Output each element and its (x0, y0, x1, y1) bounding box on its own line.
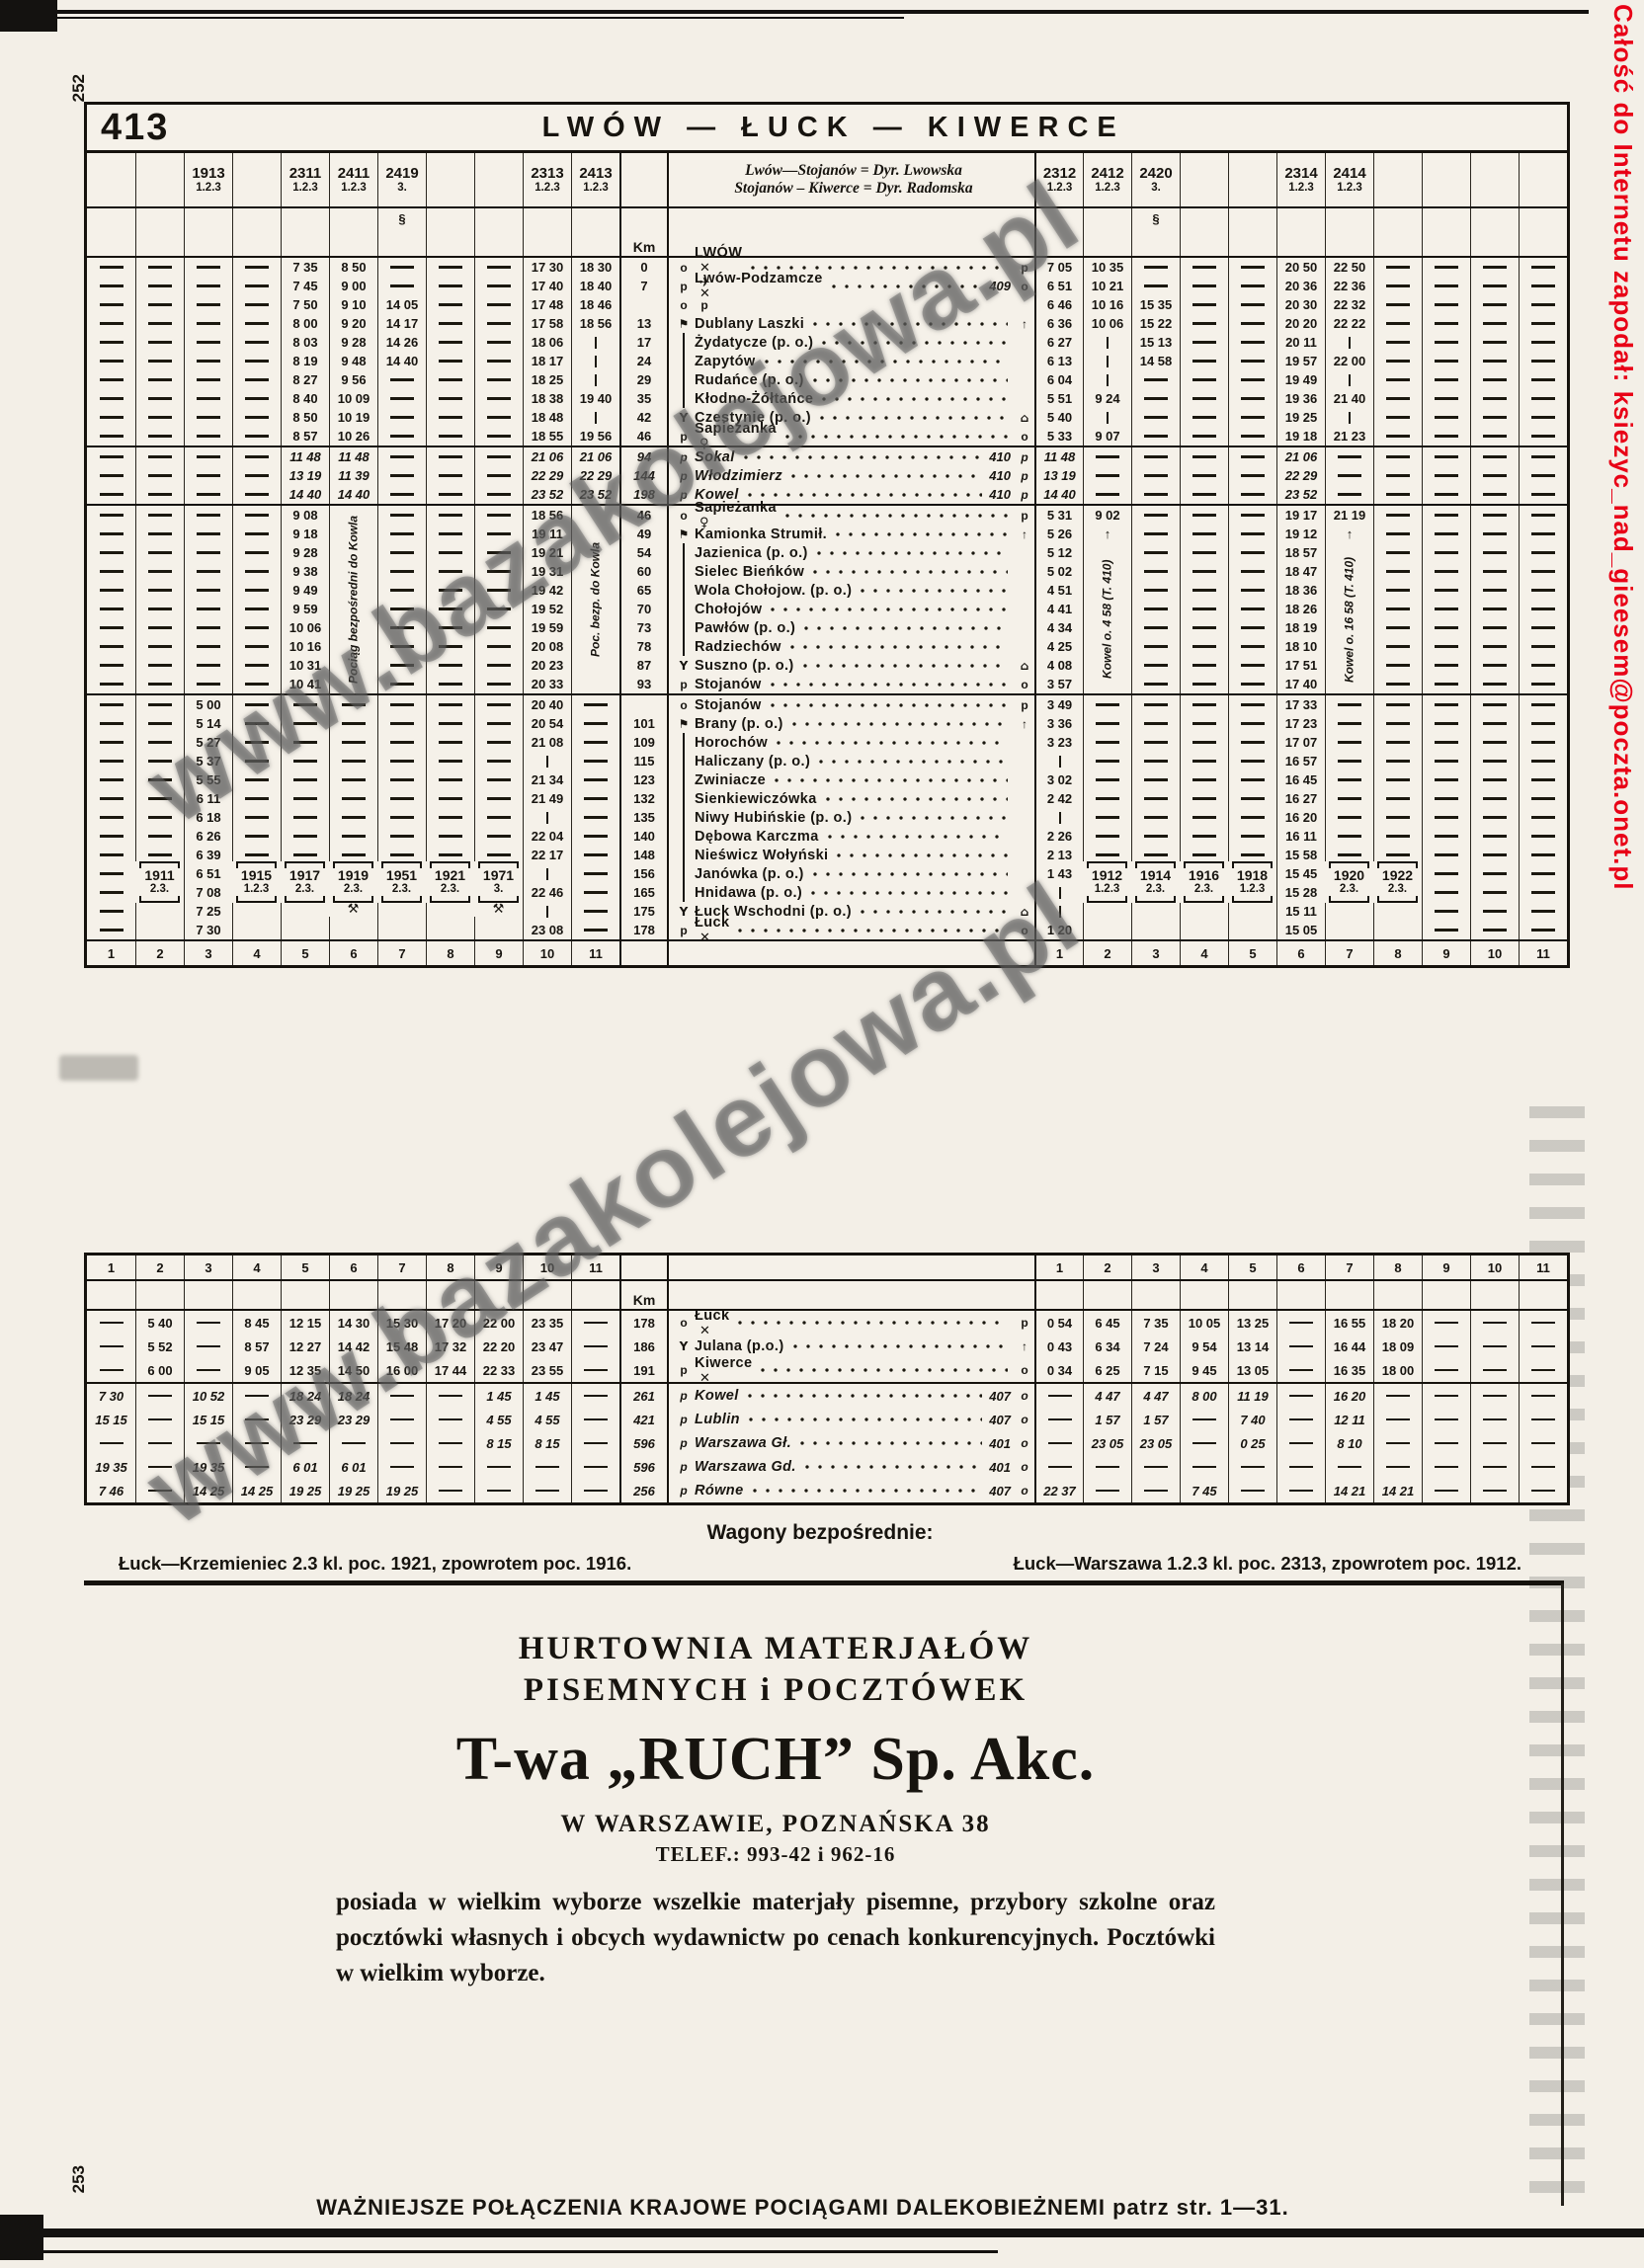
station-prefix: p (673, 1358, 695, 1382)
time-cell (232, 1281, 281, 1309)
through-coach-left: Łuck—Krzemieniec 2.3 kl. poc. 1921, zpow… (119, 1553, 631, 1575)
time-cell (1422, 637, 1470, 656)
dash-mark (1531, 1395, 1555, 1398)
km-cell: 109 (619, 733, 667, 752)
time-cell: 20 50 (1276, 258, 1325, 277)
dash-mark (1531, 514, 1555, 517)
station-prefix: o (673, 1311, 695, 1335)
dash-mark (1483, 816, 1507, 819)
dash-mark (1241, 778, 1265, 781)
dash-mark (1241, 514, 1265, 517)
dash-mark (245, 703, 269, 706)
continuation-mark (1059, 887, 1061, 899)
time-cell: 23 05 (1131, 1431, 1180, 1455)
time-cell: 8 00 (281, 314, 329, 333)
dash-mark (245, 741, 269, 744)
dash-mark (293, 760, 317, 763)
time-cell: 6 04 (1034, 370, 1083, 389)
dotted-leader (811, 568, 1008, 576)
dash-mark (245, 853, 269, 856)
time-cell (135, 408, 184, 427)
dash-mark (1531, 1490, 1555, 1493)
time-cell (1373, 1431, 1422, 1455)
dash-mark (1192, 722, 1216, 725)
time-cell: 19 42 (523, 581, 571, 600)
dash-mark (584, 778, 608, 781)
time-cell (1519, 808, 1567, 827)
time-cell: 19 40 (571, 389, 619, 408)
time-cell: 3 (184, 1255, 232, 1279)
station-prefix (673, 333, 695, 352)
time-cell (1470, 485, 1519, 504)
time-cell (1519, 352, 1567, 370)
km-cell: 165 (619, 883, 667, 902)
time-cell (184, 295, 232, 314)
train-number: 2311 (289, 165, 322, 182)
station-row: 7 25175YŁuck Wschodni (p. o.)⌂15 11 (87, 902, 1567, 921)
time-cell (1470, 789, 1519, 808)
station-name: Suszno (p. o.) (695, 658, 794, 674)
time-cell: 19 17 (1276, 506, 1325, 525)
continuation-mark (1349, 412, 1351, 424)
dash-mark (390, 284, 414, 287)
dash-mark (1048, 1418, 1072, 1421)
time-cell (474, 314, 523, 333)
dash-mark (1531, 284, 1555, 287)
time-cell (184, 447, 232, 466)
dash-mark (584, 891, 608, 894)
dash-mark (1241, 474, 1265, 477)
time-cell (1470, 808, 1519, 827)
station-row: 14 4014 4023 5223 52198pKowel410p14 4023… (87, 485, 1567, 504)
time-cell: 9 10 (329, 295, 377, 314)
dash-mark (390, 378, 414, 381)
time-cell (135, 485, 184, 504)
dash-mark (1192, 474, 1216, 477)
dash-mark (1241, 360, 1265, 363)
time-cell (135, 600, 184, 618)
time-cell (426, 714, 474, 733)
dash-mark (1531, 1322, 1555, 1325)
dash-mark (1241, 683, 1265, 686)
time-cell (135, 370, 184, 389)
station-prefix: Y (673, 1335, 695, 1358)
km-cell: 148 (619, 846, 667, 864)
time-cell: 5 40 (1034, 408, 1083, 427)
time-cell (1180, 902, 1228, 921)
km-cell: 13 (619, 314, 667, 333)
time-cell (1131, 675, 1180, 693)
station-name: Warszawa Gd. (695, 1459, 796, 1475)
time-cell: 5 27 (184, 733, 232, 752)
time-cell (1228, 525, 1276, 543)
time-cell (426, 352, 474, 370)
dash-mark (1386, 397, 1410, 400)
station-prefix (673, 733, 695, 752)
flag-icon: ⚑ (679, 317, 690, 331)
dash-mark (487, 760, 511, 763)
dotted-leader (746, 491, 983, 499)
dash-mark (1531, 778, 1555, 781)
time-cell (1276, 1479, 1325, 1502)
station-prefix: p (673, 1384, 695, 1408)
time-cell (329, 1281, 377, 1309)
km-cell: 35 (619, 389, 667, 408)
time-cell (1470, 466, 1519, 485)
time-cell: 0 34 (1034, 1358, 1083, 1382)
time-cell (1519, 1281, 1567, 1309)
time-cell (1470, 277, 1519, 295)
time-cell (232, 827, 281, 846)
time-cell: 17 32 (426, 1335, 474, 1358)
dash-mark (1241, 589, 1265, 592)
station-cell: Radziechów (667, 637, 1034, 656)
route-line-icon (683, 789, 685, 808)
dash-mark (1531, 435, 1555, 438)
station-cell (667, 208, 1034, 228)
dash-mark (439, 664, 462, 667)
time-cell (1373, 506, 1422, 525)
dash-mark (197, 435, 220, 438)
time-cell: 10 31 (281, 656, 329, 675)
time-cell (232, 714, 281, 733)
time-cell (1422, 752, 1470, 770)
time-cell (1131, 902, 1180, 921)
time-cell (377, 485, 426, 504)
dash-mark (100, 797, 123, 800)
km-cell: 178 (619, 921, 667, 939)
bracket-bottom (285, 896, 325, 903)
station-prefix (673, 770, 695, 789)
dash-mark (1144, 378, 1168, 381)
time-cell: 17 40 (1276, 675, 1325, 693)
time-cell (1180, 562, 1228, 581)
dash-mark (1386, 626, 1410, 629)
time-cell (474, 370, 523, 389)
train-number: 1911 (135, 868, 184, 883)
time-cell (232, 675, 281, 693)
station-prefix: p (673, 675, 695, 693)
station-prefix: p (673, 1479, 695, 1502)
station-cell: pWarszawa Gd.401o (667, 1455, 1034, 1479)
station-cell: Wola Chołojow. (p. o.) (667, 581, 1034, 600)
km-cell: 46 (619, 506, 667, 525)
time-cell (1180, 695, 1228, 714)
dash-mark (487, 303, 511, 306)
time-cell (1519, 466, 1567, 485)
time-cell (329, 228, 377, 256)
dotted-leader (788, 643, 1008, 651)
time-cell (87, 258, 135, 277)
dash-mark (100, 664, 123, 667)
time-cell (1325, 827, 1373, 846)
time-cell (87, 637, 135, 656)
dash-mark (245, 664, 269, 667)
time-cell (1083, 733, 1131, 752)
time-cell (377, 581, 426, 600)
time-cell (1470, 695, 1519, 714)
time-cell (135, 637, 184, 656)
time-cell (1519, 733, 1567, 752)
time-cell (1131, 277, 1180, 295)
time-cell (426, 733, 474, 752)
dash-mark (245, 816, 269, 819)
time-cell (474, 1455, 523, 1479)
dash-mark (487, 645, 511, 648)
time-cell: 14 40 (281, 485, 329, 504)
dash-mark (487, 455, 511, 458)
dotted-leader (742, 453, 983, 461)
time-cell: 9 59 (281, 600, 329, 618)
dash-mark (1386, 741, 1410, 744)
dash-mark (390, 397, 414, 400)
bracket-bottom (1232, 896, 1273, 903)
dash-mark (197, 493, 220, 496)
dash-mark (1338, 816, 1361, 819)
dash-mark (1144, 664, 1168, 667)
dash-mark (148, 797, 172, 800)
time-cell: 14 25 (184, 1479, 232, 1502)
time-cell (1373, 714, 1422, 733)
dash-mark (1531, 378, 1555, 381)
time-cell (1519, 656, 1567, 675)
time-cell (377, 447, 426, 466)
time-cell (426, 902, 474, 921)
dash-mark (1241, 284, 1265, 287)
time-cell: 10 (1470, 1255, 1519, 1279)
dash-mark (148, 683, 172, 686)
dash-mark (197, 266, 220, 269)
time-cell (1325, 789, 1373, 808)
dash-mark (1144, 551, 1168, 554)
time-cell (1083, 808, 1131, 827)
time-cell (426, 618, 474, 637)
time-cell (571, 1281, 619, 1309)
time-cell (377, 789, 426, 808)
dash-mark (1531, 360, 1555, 363)
time-cell (1228, 389, 1276, 408)
time-cell (281, 695, 329, 714)
dash-mark (1192, 416, 1216, 419)
dash-mark (439, 760, 462, 763)
dash-mark (487, 474, 511, 477)
time-cell: 14 05 (377, 295, 426, 314)
time-cell: 20 30 (1276, 295, 1325, 314)
dash-mark (390, 474, 414, 477)
dash-mark (1144, 741, 1168, 744)
time-cell (232, 1431, 281, 1455)
dash-mark (1192, 645, 1216, 648)
time-cell: 2 (1083, 941, 1131, 965)
time-cell (1228, 1455, 1276, 1479)
train-class: 3. (474, 883, 523, 896)
dash-mark (197, 1322, 220, 1325)
connecting-table-number: 410 (989, 449, 1011, 464)
time-cell (87, 770, 135, 789)
km-cell: 78 (619, 637, 667, 656)
time-cell: 10 19 (329, 408, 377, 427)
dash-mark (1531, 910, 1555, 913)
time-cell (1325, 902, 1373, 921)
time-cell (232, 733, 281, 752)
time-cell (1325, 733, 1373, 752)
time-cell: 18 26 (1276, 600, 1325, 618)
time-cell (1228, 1281, 1276, 1309)
station-suffix: o (1015, 430, 1034, 444)
time-cell: 3 (1131, 941, 1180, 965)
train-number: 2312 (1043, 165, 1076, 182)
time-cell: 7 35 (281, 258, 329, 277)
bracket-bottom (1377, 896, 1418, 903)
time-cell (377, 1431, 426, 1455)
time-cell: 23 29 (329, 1408, 377, 1431)
train-number-row: 19131.2.323111.2.324111.2.324193.23131.2… (87, 153, 1567, 208)
dash-mark (148, 1418, 172, 1421)
dash-mark (1531, 797, 1555, 800)
time-cell: 9 28 (329, 333, 377, 352)
time-cell (184, 1358, 232, 1382)
time-cell (1228, 733, 1276, 752)
time-cell (377, 921, 426, 939)
time-cell: 16 27 (1276, 789, 1325, 808)
scan-edge-line (0, 2228, 1644, 2237)
time-cell (1228, 228, 1276, 256)
time-cell (1422, 733, 1470, 752)
train-number-box: 19512.3. (377, 861, 426, 903)
time-cell (474, 1281, 523, 1309)
station-row: 19 3519 356 016 01596pWarszawa Gd.401o (87, 1455, 1567, 1479)
dash-mark (1386, 551, 1410, 554)
dash-mark (1531, 645, 1555, 648)
train-class: 2.3. (377, 883, 426, 896)
time-cell: 9 45 (1180, 1358, 1228, 1382)
time-cell (184, 352, 232, 370)
time-cell (1228, 714, 1276, 733)
dash-mark (197, 416, 220, 419)
dash-mark (1289, 1369, 1313, 1372)
station-prefix: Y (673, 902, 695, 921)
time-cell (1470, 295, 1519, 314)
dash-mark (1338, 797, 1361, 800)
time-cell: 18 46 (571, 295, 619, 314)
dash-mark (584, 853, 608, 856)
route-line-icon (683, 562, 685, 581)
dash-mark (487, 741, 511, 744)
dash-mark (1386, 266, 1410, 269)
time-cell: 5 (1228, 1255, 1276, 1279)
time-cell (1470, 370, 1519, 389)
dash-mark (1483, 1466, 1507, 1469)
station-cell: Haliczany (p. o.) (667, 752, 1034, 770)
station-cell: pLublin407o (667, 1408, 1034, 1431)
dash-mark (487, 626, 511, 629)
time-cell: 21 06 (571, 447, 619, 466)
time-cell: 17 30 (523, 258, 571, 277)
time-cell (571, 827, 619, 846)
dash-mark (1435, 435, 1458, 438)
station-name: Pawłów (p. o.) (695, 620, 795, 636)
dash-mark (148, 645, 172, 648)
time-cell (1034, 1281, 1083, 1309)
time-cell (281, 752, 329, 770)
dash-mark (1483, 683, 1507, 686)
time-cell: 6 25 (1083, 1358, 1131, 1382)
time-cell (1180, 485, 1228, 504)
dash-mark (487, 664, 511, 667)
station-suffix: ↑ (1015, 1339, 1034, 1353)
time-cell: 7 30 (87, 1384, 135, 1408)
time-cell (232, 600, 281, 618)
time-cell (1373, 618, 1422, 637)
time-cell (1228, 333, 1276, 352)
dash-mark (148, 570, 172, 573)
station-suffix: p (1015, 509, 1034, 523)
dash-mark (487, 703, 511, 706)
time-cell (135, 656, 184, 675)
dash-mark (487, 322, 511, 325)
dash-mark (1144, 1490, 1168, 1493)
dash-mark (1096, 1490, 1119, 1493)
time-cell (1180, 752, 1228, 770)
station-prefix: o (673, 695, 695, 714)
time-cell: 1 (1034, 1255, 1083, 1279)
time-cell: 11 48 (329, 447, 377, 466)
time-cell (232, 277, 281, 295)
station-suffix: o (1015, 924, 1034, 937)
time-cell (135, 314, 184, 333)
time-cell (184, 637, 232, 656)
time-cell (474, 827, 523, 846)
time-cell (474, 695, 523, 714)
time-cell (1422, 902, 1470, 921)
time-cell (377, 525, 426, 543)
dash-mark (342, 778, 366, 781)
station-cell: pLwów-Podzamcze✕409o (667, 277, 1034, 295)
time-cell: 21 49 (523, 789, 571, 808)
bracket-bottom (1135, 896, 1176, 903)
time-cell (184, 208, 232, 228)
time-cell: 18 40 (571, 277, 619, 295)
train-number: 1916 (1180, 868, 1228, 883)
dash-mark (100, 910, 123, 913)
dash-mark (1386, 778, 1410, 781)
time-cell (87, 1358, 135, 1382)
time-cell: 7 (377, 941, 426, 965)
dash-mark (1386, 474, 1410, 477)
time-cell (1373, 733, 1422, 752)
dash-mark (197, 341, 220, 344)
time-cell (135, 752, 184, 770)
dotted-leader (747, 1416, 982, 1423)
dash-mark (342, 797, 366, 800)
time-cell: 23 35 (523, 1311, 571, 1335)
time-cell: 20 11 (1276, 333, 1325, 352)
dash-mark (1435, 551, 1458, 554)
dotted-leader (783, 512, 1008, 520)
time-cell (1422, 827, 1470, 846)
station-row: 15 1515 1523 2923 294 554 55421pLublin40… (87, 1408, 1567, 1431)
time-cell (281, 714, 329, 733)
time-cell (1131, 485, 1180, 504)
time-cell: 10 26 (329, 427, 377, 445)
route-line-icon (683, 389, 685, 408)
dash-mark (1192, 570, 1216, 573)
dash-mark (487, 266, 511, 269)
time-cell: 4 55 (474, 1408, 523, 1431)
dash-mark (1435, 929, 1458, 931)
dotted-leader (820, 339, 1008, 347)
station-name: Julana (p.o.) (695, 1338, 784, 1354)
